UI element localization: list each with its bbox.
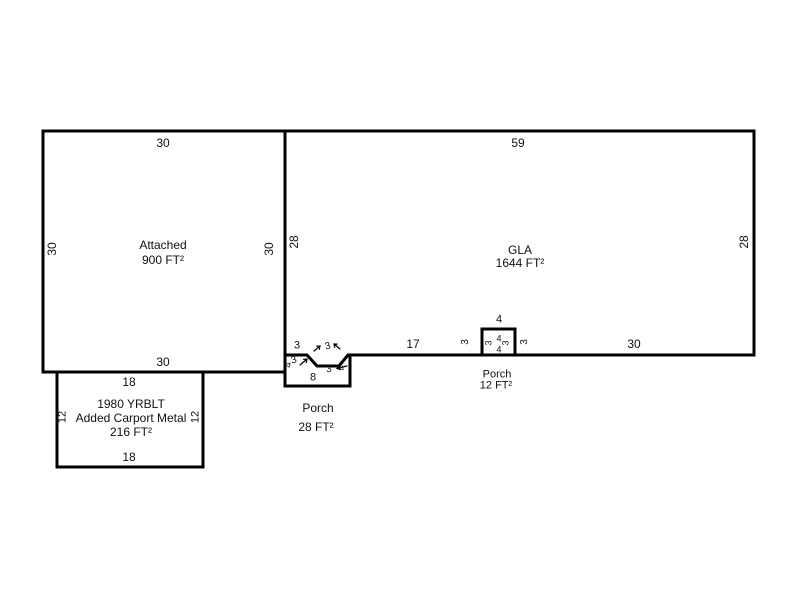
dim-carport-bottom: 18 (122, 451, 135, 463)
leader-arrow-notch-right (334, 344, 340, 349)
gla-area-label: 1644 FT² (496, 257, 545, 269)
dim-gla-top: 59 (511, 137, 524, 149)
dim-gla-bottom-right-seg: 30 (627, 338, 640, 350)
gla-name-label: GLA (508, 244, 532, 256)
carport-area-label: 216 FT² (110, 426, 152, 438)
dim-gla-bottom-left-seg: 3 (294, 341, 300, 352)
dim-small-porch-inner-bottom: 4 (496, 346, 501, 355)
dim-attached-top: 30 (156, 137, 169, 149)
front-porch-name-label: Porch (302, 402, 333, 414)
sketch-outlines (0, 0, 800, 600)
dim-gla-porch-adj-left: 3 (461, 339, 471, 345)
leader-arrow-diag-left (300, 359, 307, 365)
floorplan-sketch: 30 30 30 Attached 900 FT² 30 59 28 28 GL… (0, 0, 800, 600)
dim-small-porch-top: 4 (496, 315, 502, 326)
attached-area-label: 900 FT² (142, 254, 184, 266)
small-porch-area-label: 12 FT² (480, 381, 512, 392)
dim-small-porch-inner-right: 3 (502, 340, 511, 345)
dim-gla-left: 28 (288, 235, 300, 248)
dim-carport-right: 12 (191, 411, 202, 423)
dim-small-porch-inner-left: 3 (485, 340, 494, 345)
dim-carport-top: 18 (122, 376, 135, 388)
dim-attached-left: 30 (46, 242, 58, 255)
dim-gla-bottom-mid-seg: 17 (406, 338, 419, 350)
dim-attached-bottom: 30 (156, 356, 169, 368)
dim-front-porch-notch-bottom: 3 (325, 365, 332, 376)
dim-attached-right: 30 (263, 242, 275, 255)
attached-name-label: Attached (139, 239, 186, 251)
dim-front-porch-bottom: 8 (310, 373, 316, 384)
dim-gla-right: 28 (738, 235, 750, 248)
front-porch-area-label: 28 FT² (298, 421, 333, 433)
dim-carport-left: 12 (58, 411, 69, 423)
carport-desc-label: Added Carport Metal (76, 412, 187, 424)
carport-year-label: 1980 YRBLT (97, 398, 165, 410)
leader-arrow-notch-left (314, 346, 320, 351)
dim-gla-porch-adj-right: 3 (520, 339, 530, 345)
